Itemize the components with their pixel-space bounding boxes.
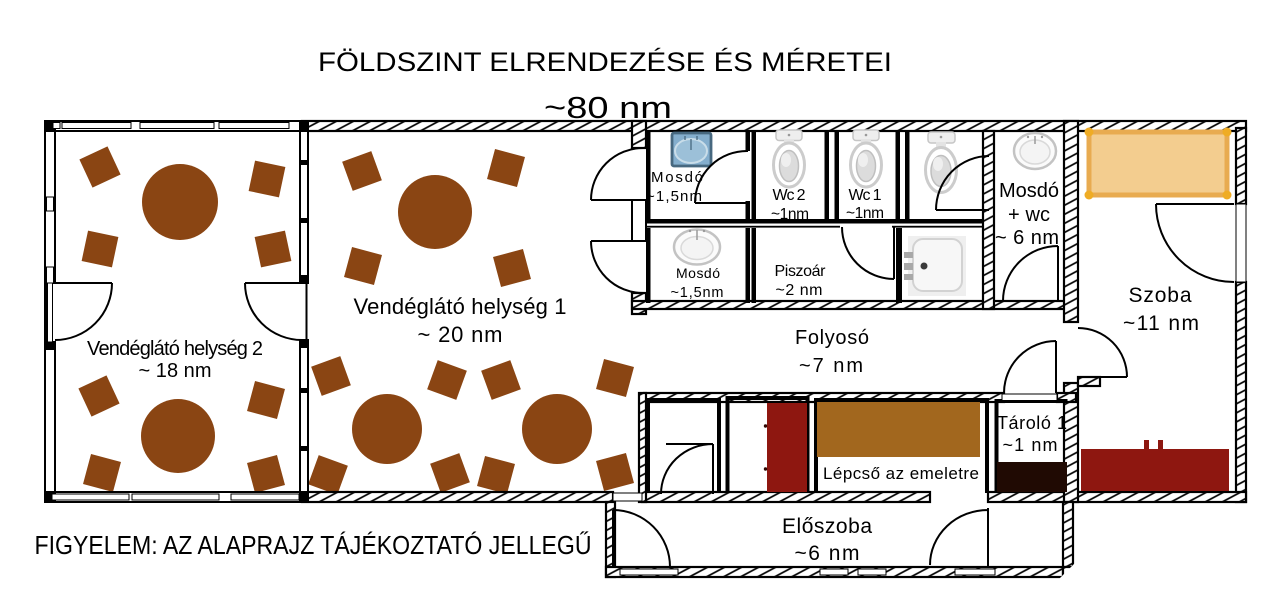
svg-text:Folyosó: Folyosó [795, 327, 869, 349]
svg-text:FÖLDSZINT ELRENDEZÉSE ÉS MÉRET: FÖLDSZINT ELRENDEZÉSE ÉS MÉRETEI [318, 47, 892, 77]
svg-text:+ wc: + wc [1008, 204, 1050, 226]
svg-text:Vendéglátó helység 1: Vendéglátó helység 1 [354, 294, 567, 319]
svg-text:~1,5nm: ~1,5nm [646, 188, 702, 205]
svg-text:~ 18 nm: ~ 18 nm [139, 360, 212, 382]
svg-text:~1,5nm: ~1,5nm [671, 285, 724, 301]
svg-text:~ 20 nm: ~ 20 nm [418, 322, 503, 347]
svg-text:Előszoba: Előszoba [782, 515, 872, 538]
svg-text:~11 nm: ~11 nm [1123, 312, 1199, 335]
svg-text:~80 nm: ~80 nm [544, 90, 672, 125]
svg-text:~1 nm: ~1 nm [1003, 435, 1058, 455]
svg-text:Tároló 1: Tároló 1 [997, 413, 1067, 433]
svg-text:Mosdó: Mosdó [999, 180, 1059, 202]
svg-text:FIGYELEM: AZ ALAPRAJZ TÁJÉKOZT: FIGYELEM: AZ ALAPRAJZ TÁJÉKOZTATÓ JELLEG… [35, 530, 592, 560]
svg-text:~6 nm: ~6 nm [795, 542, 860, 565]
svg-text:~ 6 nm: ~ 6 nm [995, 227, 1059, 249]
svg-text:Mosdó: Mosdó [676, 265, 720, 281]
svg-text:Mosdó: Mosdó [651, 169, 703, 186]
svg-text:Lépcső az emeletre: Lépcső az emeletre [823, 464, 979, 483]
svg-text:~7 nm: ~7 nm [799, 355, 863, 377]
svg-text:~1nm: ~1nm [846, 205, 884, 222]
svg-text:Wc 1: Wc 1 [849, 187, 882, 204]
svg-text:Szoba: Szoba [1129, 284, 1192, 307]
svg-text:Piszoár: Piszoár [775, 263, 827, 280]
svg-text:Wc 2: Wc 2 [773, 187, 806, 204]
svg-text:~1nm: ~1nm [771, 206, 809, 223]
svg-text:Vendéglátó helység 2: Vendéglátó helység 2 [87, 338, 263, 360]
svg-text:~2 nm: ~2 nm [776, 282, 823, 299]
